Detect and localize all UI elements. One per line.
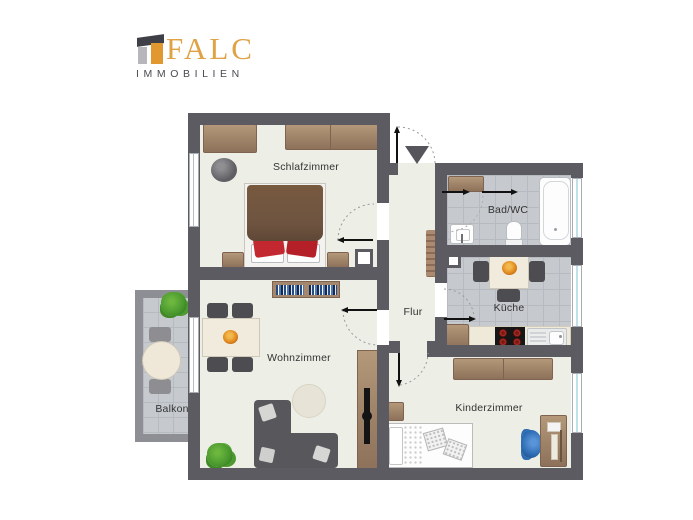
- fruit-bowl: [223, 330, 238, 344]
- kitchen-bowl: [502, 261, 517, 275]
- balcony-chair: [149, 379, 171, 394]
- desk-chair: [521, 430, 542, 458]
- schlafzimmer-stool: [211, 158, 237, 182]
- kitchen-chair: [473, 261, 489, 282]
- brand-subtitle: IMMOBILIEN: [136, 68, 244, 80]
- kitchen-chair: [529, 261, 545, 282]
- kids-nightstand: [388, 402, 404, 421]
- wall-entry-stub: [377, 163, 398, 175]
- wall-room-divider: [200, 267, 377, 280]
- room-label-schlafzimmer: Schlafzimmer: [273, 161, 339, 173]
- balcony-chair: [149, 327, 171, 342]
- room-label-kueche: Küche: [494, 302, 525, 314]
- wall-right-1: [571, 163, 583, 178]
- wall-kinder-top-right: [427, 341, 435, 357]
- balcony-plant: [161, 292, 187, 316]
- wall-bottom: [188, 468, 583, 480]
- wall-kueche-left-upper: [435, 257, 447, 283]
- corner-sofa: [254, 400, 338, 468]
- double-bed: [244, 183, 326, 268]
- brand-logo: FALC IMMOBILIEN: [135, 32, 255, 82]
- wall-right-4: [571, 433, 583, 480]
- wall-top: [188, 113, 390, 125]
- room-label-wohnzimmer: Wohnzimmer: [267, 352, 331, 364]
- brand-logo-house-icon: [135, 32, 165, 66]
- balcony-door: [189, 317, 199, 393]
- balcony-table: [142, 341, 181, 380]
- schlafzimmer-wardrobe-left: [203, 124, 257, 153]
- entrance-arrow-icon: [405, 146, 429, 164]
- bathroom-sink: [450, 224, 474, 244]
- wall-center-a: [377, 175, 389, 203]
- badwc-window: [572, 178, 582, 238]
- wall-kueche-bottom: [435, 345, 583, 357]
- dining-chair: [207, 357, 228, 372]
- schlafzimmer-shaft: [355, 249, 373, 267]
- wall-badwc-top: [435, 163, 583, 175]
- kids-bed: [386, 423, 473, 468]
- nightstand-right: [327, 252, 349, 268]
- dining-chair: [207, 303, 228, 318]
- brand-name: FALC: [166, 32, 255, 66]
- kitchen-chair: [497, 289, 520, 302]
- toilet: [505, 221, 523, 246]
- room-label-badwc: Bad/WC: [488, 204, 528, 216]
- tv-cabinet: [357, 350, 378, 470]
- schlafzimmer-window: [189, 153, 199, 227]
- entrance-door-arc: [398, 127, 435, 164]
- wall-center-c: [377, 345, 389, 468]
- bookshelf: [272, 281, 340, 298]
- balcony-wall-bottom: [135, 434, 188, 442]
- wall-kinder-top-left: [389, 341, 400, 353]
- room-label-kinderzimmer: Kinderzimmer: [455, 402, 522, 414]
- dining-chair: [232, 303, 253, 318]
- wall-center-b: [377, 240, 389, 310]
- kueche-window: [572, 265, 582, 327]
- dining-chair: [232, 357, 253, 372]
- bathroom-cabinet: [448, 176, 484, 192]
- room-label-balkon: Balkon: [155, 403, 188, 415]
- kinderzimmer-window: [572, 373, 582, 433]
- entrance-door-leaf-arrowhead: [394, 126, 400, 133]
- nightstand-left: [222, 252, 244, 268]
- room-label-flur: Flur: [404, 306, 423, 318]
- kids-wardrobe: [453, 358, 553, 380]
- wall-badwc-bottom: [435, 245, 583, 257]
- plant: [207, 443, 233, 467]
- schlafzimmer-wardrobe-right: [285, 124, 382, 150]
- kids-desk: [540, 415, 567, 467]
- floorplan-page: FALC IMMOBILIEN: [0, 0, 693, 520]
- bathtub: [539, 177, 571, 246]
